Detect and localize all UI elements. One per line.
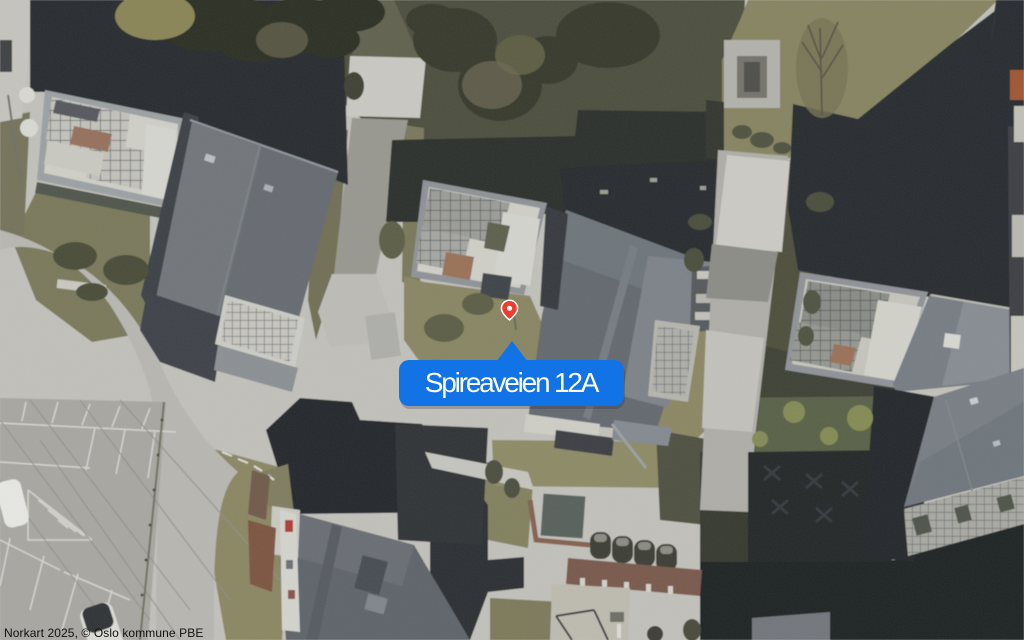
svg-text:Norkart 2025, © Oslo kommune P: Norkart 2025, © Oslo kommune PBE: [4, 626, 203, 640]
svg-text:Spireaveien 12A: Spireaveien 12A: [425, 367, 600, 398]
